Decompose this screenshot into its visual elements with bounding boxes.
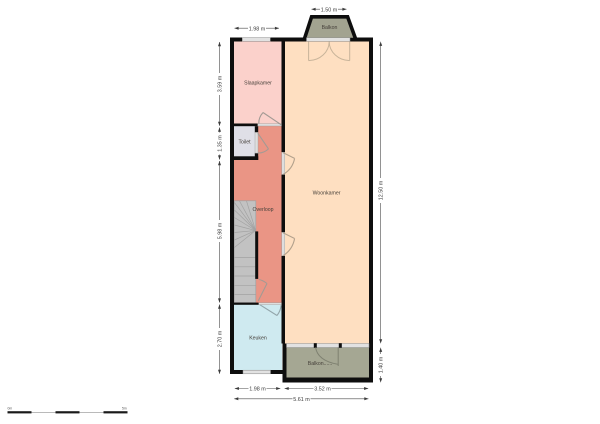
svg-text:3.52 m: 3.52 m xyxy=(314,387,331,393)
svg-text:5m: 5m xyxy=(122,407,127,411)
svg-text:Balkon: Balkon xyxy=(322,25,338,31)
svg-text:Toilet: Toilet xyxy=(238,140,251,146)
svg-text:Keuken: Keuken xyxy=(249,336,267,342)
svg-text:2.70 m: 2.70 m xyxy=(218,330,224,347)
svg-text:1.98 m: 1.98 m xyxy=(249,26,266,32)
svg-text:Overloop: Overloop xyxy=(252,207,273,213)
svg-text:0m: 0m xyxy=(8,407,13,411)
svg-text:1.40 m: 1.40 m xyxy=(379,356,385,373)
svg-text:5.61 m: 5.61 m xyxy=(293,397,310,403)
svg-text:1.50 m: 1.50 m xyxy=(321,7,338,13)
svg-text:1.98 m: 1.98 m xyxy=(249,387,266,393)
svg-text:Slaapkamer: Slaapkamer xyxy=(244,81,272,87)
svg-text:1.35 m: 1.35 m xyxy=(218,135,224,152)
svg-text:Balkon......: Balkon...... xyxy=(308,361,333,367)
svg-text:5.98 m: 5.98 m xyxy=(218,222,224,239)
svg-text:Woonkamer: Woonkamer xyxy=(313,191,341,197)
svg-text:12.50 m: 12.50 m xyxy=(379,180,385,200)
svg-text:3.59 m: 3.59 m xyxy=(218,75,224,92)
